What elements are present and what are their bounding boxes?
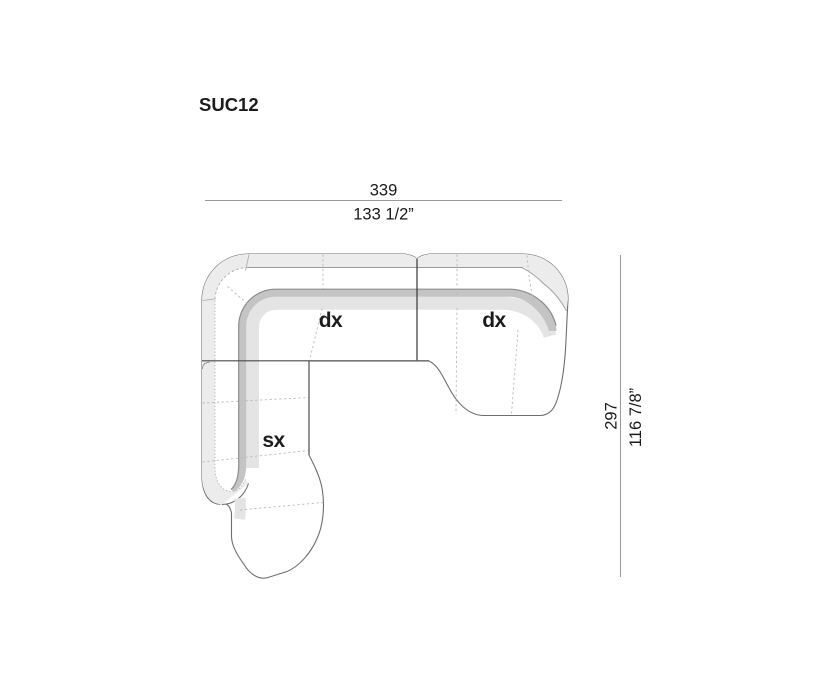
sofa-plan: dx dx sx — [202, 254, 568, 578]
section-label-right: dx — [482, 309, 506, 332]
width-dimension-inches: 133 1/2” — [353, 206, 414, 224]
left-hook-fade — [240, 498, 241, 519]
width-dimension: 339 133 1/2” — [205, 182, 562, 224]
depth-dimension-inches: 116 7/8” — [627, 388, 645, 447]
sofa-top-view-diagram: SUC12 339 133 1/2” 297 116 7/8” — [0, 0, 840, 679]
sofa-spec-sheet: SUC12 339 133 1/2” 297 116 7/8” — [0, 0, 840, 679]
width-dimension-cm: 339 — [370, 182, 398, 200]
depth-dimension: 297 116 7/8” — [603, 255, 646, 577]
section-label-left: sx — [262, 429, 285, 452]
depth-dimension-cm: 297 — [603, 402, 621, 430]
section-label-corner: dx — [319, 309, 343, 332]
product-code: SUC12 — [199, 94, 259, 115]
